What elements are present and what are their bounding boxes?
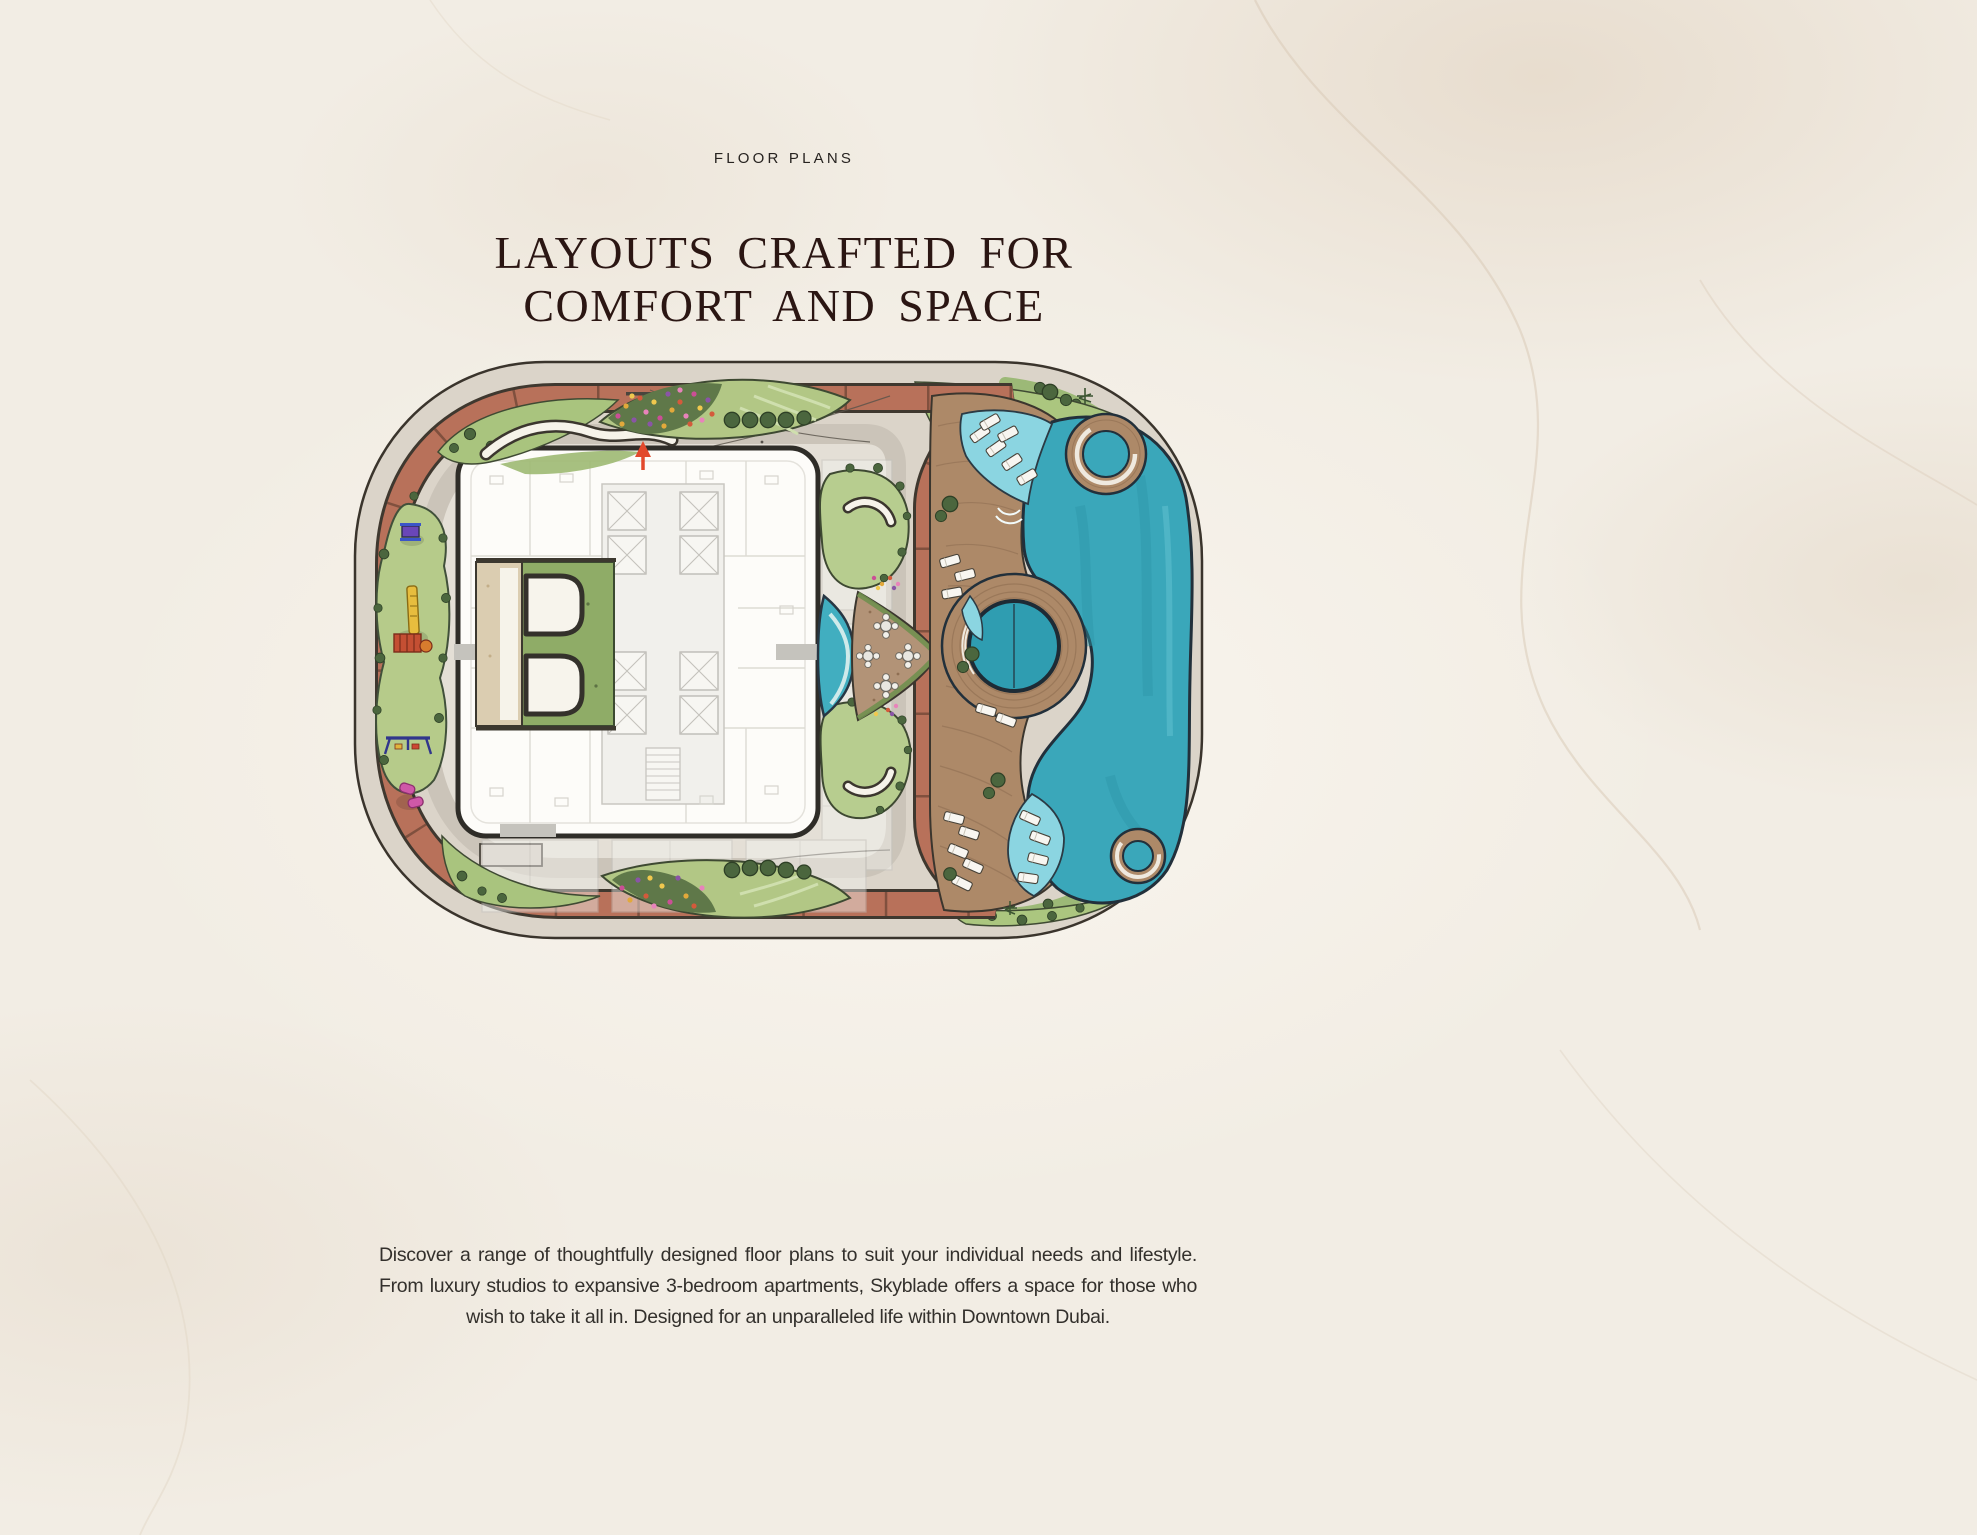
- site-plan-figure: [350, 356, 1210, 948]
- site-plan-illustration: [350, 356, 1210, 948]
- elevator-core: [602, 484, 724, 804]
- spa-circle: [942, 574, 1086, 718]
- entrance-pavilion: [476, 558, 616, 731]
- heading-line-2: COMFORT AND SPACE: [300, 279, 1268, 332]
- pool-island-bottom: [1111, 829, 1165, 883]
- section-heading: LAYOUTS CRAFTED FOR COMFORT AND SPACE: [300, 226, 1268, 332]
- pool-island-top: [1066, 414, 1146, 494]
- section-eyebrow: FLOOR PLANS: [350, 150, 1218, 167]
- description-paragraph: Discover a range of thoughtfully designe…: [379, 1240, 1197, 1333]
- page-background: FLOOR PLANS LAYOUTS CRAFTED FOR COMFORT …: [0, 0, 1977, 1535]
- heading-line-1: LAYOUTS CRAFTED FOR: [300, 226, 1268, 279]
